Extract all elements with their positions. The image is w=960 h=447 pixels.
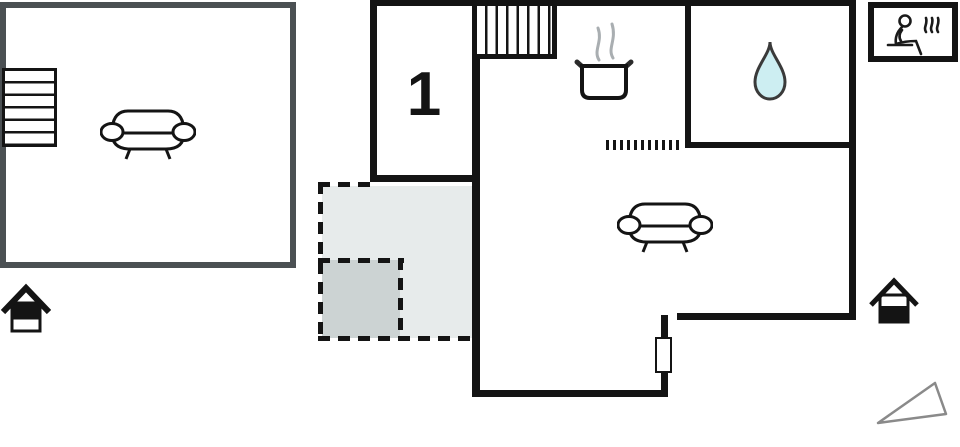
window-marker: [655, 337, 672, 373]
stairs-icon: [472, 0, 557, 59]
wall-bathroom-left: [685, 0, 691, 148]
wall-livingroom-bottom: [677, 313, 856, 320]
counter-divider-dots: [606, 140, 682, 150]
cooking-pot-icon: [572, 12, 636, 102]
wall-top: [370, 0, 856, 6]
room-label: 1: [394, 64, 454, 126]
wall-room1-left: [370, 0, 377, 182]
sauna-person-icon: [874, 8, 952, 56]
sofa-icon: [100, 103, 196, 161]
terrace-inner-area: [322, 260, 400, 338]
terrace-dash-bottom: [318, 336, 474, 341]
direction-triangle-icon: [872, 378, 950, 428]
wall-room1-bottom: [370, 175, 480, 182]
terrace-inner-dash-top: [318, 258, 404, 263]
wall-right: [849, 0, 856, 320]
floorplan-canvas: 1: [0, 0, 960, 447]
wall-hallway-bottom: [472, 390, 668, 397]
sofa-icon: [617, 196, 713, 254]
terrace-dash-top: [318, 182, 376, 187]
house-ground-floor-icon: [869, 277, 919, 325]
wall-bathroom-bottom: [685, 142, 856, 148]
sauna-badge: [868, 2, 958, 62]
stairs-icon: [2, 68, 57, 147]
house-upper-floor-icon: [1, 283, 51, 335]
terrace-inner-dash-right: [398, 258, 403, 341]
water-drop-icon: [751, 40, 789, 102]
